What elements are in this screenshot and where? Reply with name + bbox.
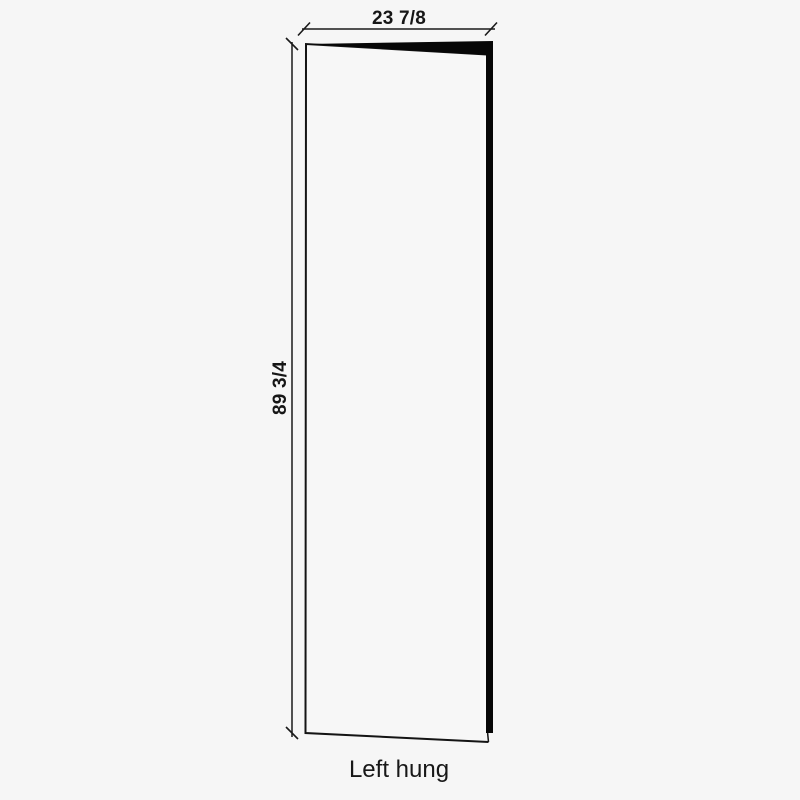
door-drawing: [0, 0, 800, 800]
door-bottom-right-edge: [488, 733, 489, 742]
hinge-side-caption: Left hung: [299, 756, 499, 784]
door-dimension-diagram: 23 7/8 89 3/4 Left hung: [0, 0, 800, 800]
door-front-face: [306, 44, 489, 742]
width-dimension-label: 23 7/8: [319, 8, 479, 30]
height-dimension-label: 89 3/4: [270, 308, 292, 468]
